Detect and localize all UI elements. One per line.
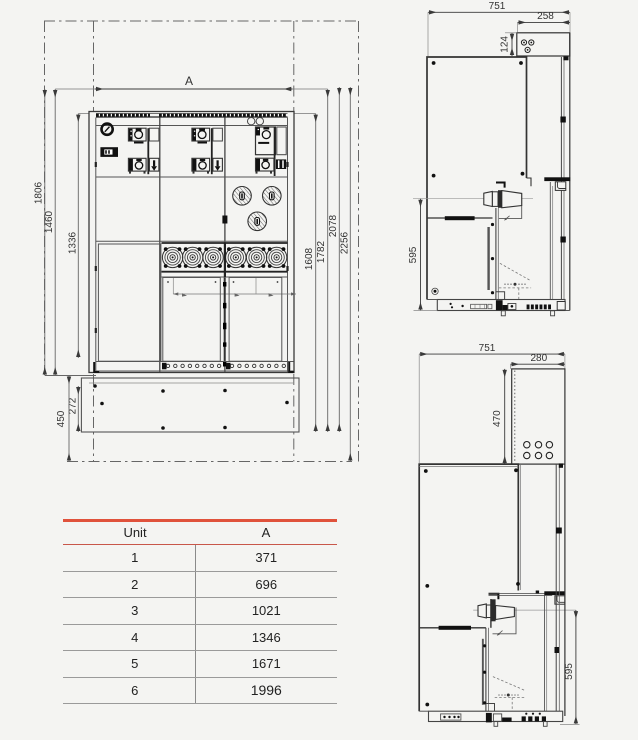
svg-text:258: 258 (537, 11, 554, 22)
svg-text:280: 280 (530, 353, 547, 364)
svg-text:450: 450 (56, 410, 67, 427)
svg-text:124: 124 (500, 36, 511, 53)
svg-text:A: A (185, 74, 193, 88)
svg-text:595: 595 (564, 663, 575, 680)
svg-text:1460: 1460 (44, 210, 55, 233)
svg-text:1782: 1782 (316, 240, 327, 263)
svg-text:751: 751 (479, 343, 496, 354)
svg-text:751: 751 (489, 1, 506, 12)
svg-text:1608: 1608 (304, 247, 315, 270)
svg-text:595: 595 (408, 246, 419, 263)
svg-text:2256: 2256 (339, 231, 350, 254)
svg-text:1806: 1806 (34, 181, 45, 204)
svg-text:1336: 1336 (68, 231, 79, 254)
svg-text:470: 470 (492, 410, 503, 427)
svg-text:2078: 2078 (328, 214, 339, 237)
